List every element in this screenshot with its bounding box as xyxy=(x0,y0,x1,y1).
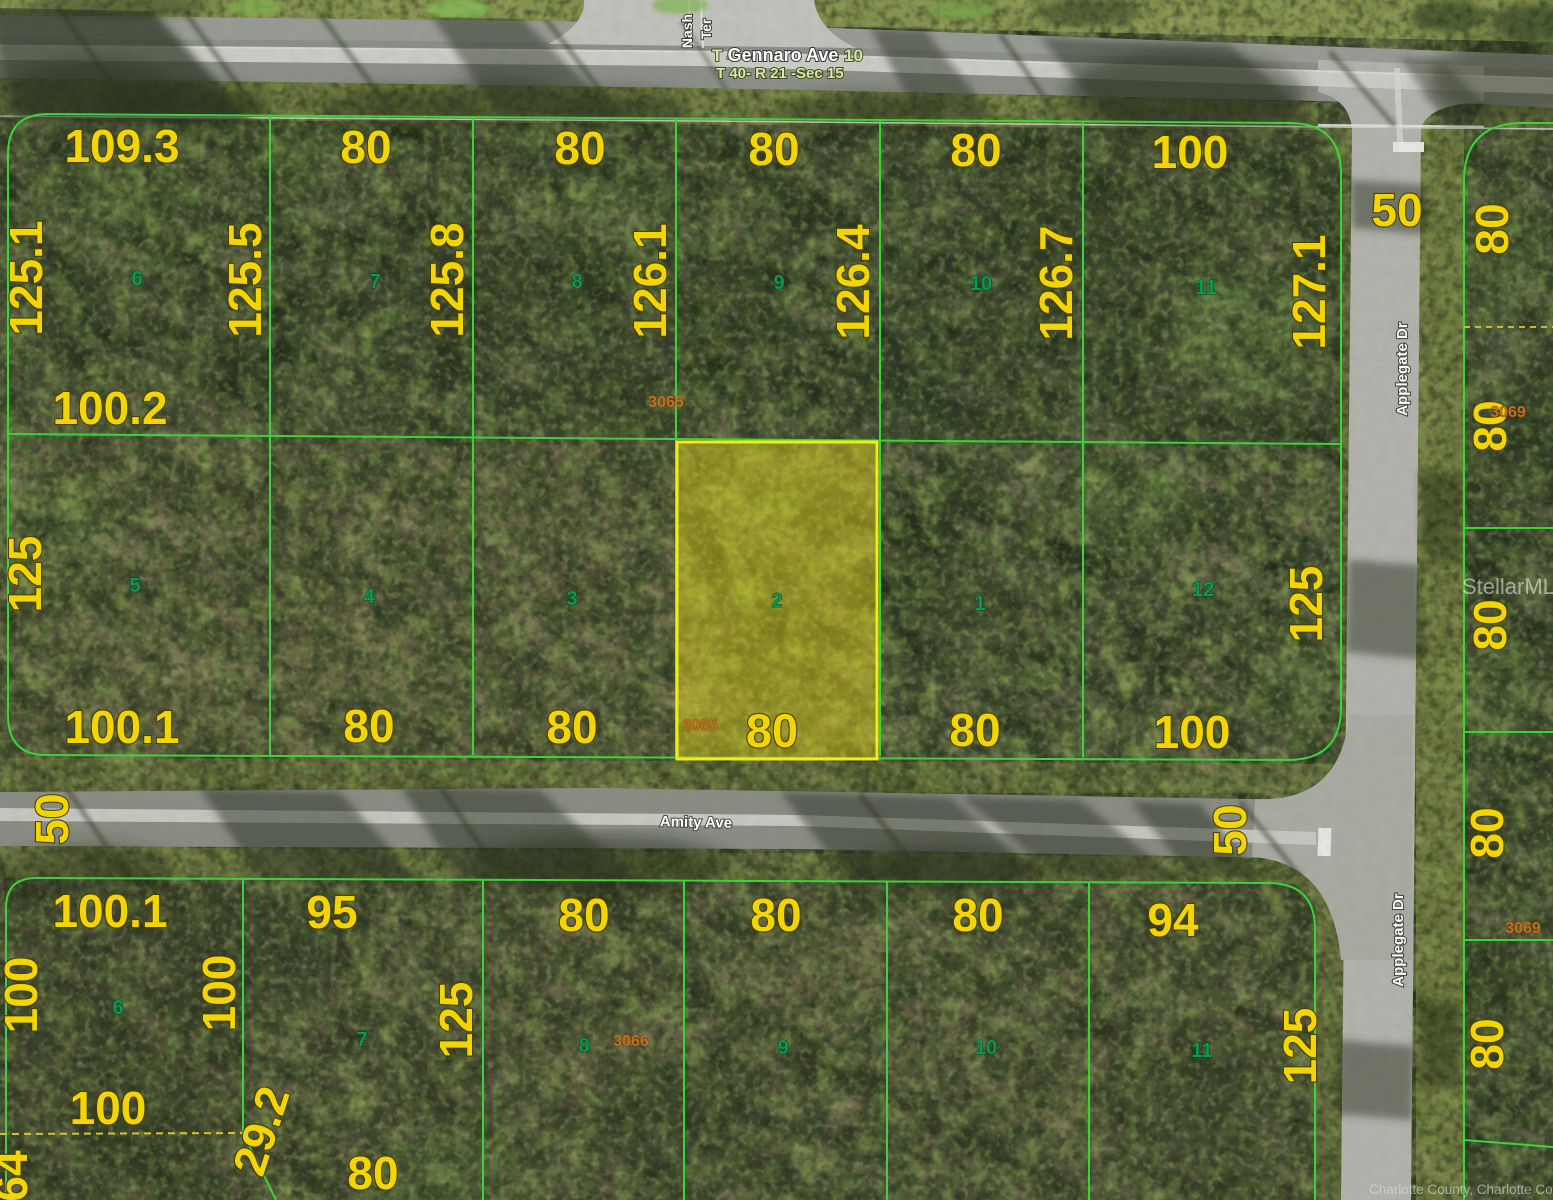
svg-text:50: 50 xyxy=(1371,184,1422,236)
svg-text:4: 4 xyxy=(363,586,375,608)
svg-text:10: 10 xyxy=(975,1037,997,1059)
svg-text:Gennaro Ave: Gennaro Ave xyxy=(728,45,839,65)
svg-text:9: 9 xyxy=(773,272,784,294)
svg-text:3066: 3066 xyxy=(613,1033,649,1050)
svg-text:100: 100 xyxy=(70,1082,147,1134)
svg-text:64: 64 xyxy=(0,1150,37,1200)
svg-text:8: 8 xyxy=(578,1035,589,1057)
svg-text:80: 80 xyxy=(1464,599,1516,650)
svg-text:126.1: 126.1 xyxy=(624,223,676,338)
svg-text:8: 8 xyxy=(571,271,582,293)
svg-text:80: 80 xyxy=(746,704,798,757)
svg-text:100.2: 100.2 xyxy=(52,382,167,434)
svg-text:80: 80 xyxy=(343,700,394,752)
svg-text:125: 125 xyxy=(430,982,482,1059)
svg-text:125: 125 xyxy=(1280,566,1332,643)
svg-text:80: 80 xyxy=(750,889,801,941)
svg-text:10: 10 xyxy=(844,46,863,65)
svg-text:50: 50 xyxy=(26,793,78,844)
svg-text:Ter: Ter xyxy=(698,18,714,39)
svg-text:50: 50 xyxy=(1204,804,1256,855)
svg-text:100: 100 xyxy=(1152,126,1229,178)
svg-text:Nash: Nash xyxy=(679,14,695,48)
svg-text:3065: 3065 xyxy=(648,394,684,411)
svg-text:6: 6 xyxy=(131,268,142,290)
svg-text:3: 3 xyxy=(566,588,577,610)
svg-text:94: 94 xyxy=(1147,894,1199,946)
svg-text:80: 80 xyxy=(554,122,605,174)
svg-text:7: 7 xyxy=(369,271,380,293)
svg-text:125.1: 125.1 xyxy=(0,220,52,335)
svg-text:125: 125 xyxy=(1274,1008,1326,1085)
svg-text:9: 9 xyxy=(777,1037,788,1059)
svg-text:80: 80 xyxy=(952,889,1003,941)
svg-text:7: 7 xyxy=(356,1029,367,1051)
svg-text:80: 80 xyxy=(748,123,799,175)
svg-text:80: 80 xyxy=(546,701,597,753)
svg-text:125.5: 125.5 xyxy=(219,222,271,337)
svg-text:Applegate Dr: Applegate Dr xyxy=(1390,893,1407,987)
svg-text:3065: 3065 xyxy=(682,717,718,734)
svg-text:12: 12 xyxy=(1192,579,1214,601)
svg-text:100.1: 100.1 xyxy=(52,885,167,937)
svg-text:1: 1 xyxy=(974,593,985,615)
svg-text:T 40- R 21 -Sec 15: T 40- R 21 -Sec 15 xyxy=(716,65,844,82)
svg-text:11: 11 xyxy=(1191,1040,1212,1062)
svg-text:125: 125 xyxy=(0,536,51,613)
svg-text:10: 10 xyxy=(970,273,992,295)
svg-text:80: 80 xyxy=(1466,203,1518,254)
svg-text:6: 6 xyxy=(112,997,123,1019)
svg-text:80: 80 xyxy=(1461,1018,1513,1069)
svg-text:100: 100 xyxy=(0,957,47,1034)
svg-text:80: 80 xyxy=(949,704,1000,756)
svg-text:126.7: 126.7 xyxy=(1030,225,1082,340)
svg-text:11: 11 xyxy=(1195,277,1216,299)
svg-text:80: 80 xyxy=(347,1147,398,1199)
svg-text:127.1: 127.1 xyxy=(1283,234,1335,349)
svg-text:100: 100 xyxy=(1154,706,1231,758)
svg-text:125.8: 125.8 xyxy=(421,222,473,337)
svg-text:3069: 3069 xyxy=(1505,920,1541,937)
svg-text:80: 80 xyxy=(558,889,609,941)
svg-text:80: 80 xyxy=(950,124,1001,176)
svg-text:109.3: 109.3 xyxy=(64,120,179,172)
svg-text:80: 80 xyxy=(340,121,391,173)
svg-text:StellarMLS: StellarMLS xyxy=(1462,574,1553,599)
svg-text:Amity Ave: Amity Ave xyxy=(660,813,733,832)
svg-text:80: 80 xyxy=(1461,807,1513,858)
svg-text:126.4: 126.4 xyxy=(827,224,879,340)
svg-text:2: 2 xyxy=(771,590,782,612)
svg-text:95: 95 xyxy=(306,886,357,938)
svg-text:Charlotte County, Charlotte Co: Charlotte County, Charlotte County GIS xyxy=(1369,1182,1553,1197)
svg-text:3069: 3069 xyxy=(1490,404,1526,421)
svg-text:100.1: 100.1 xyxy=(64,701,179,753)
svg-text:5: 5 xyxy=(129,575,140,597)
svg-text:100: 100 xyxy=(193,955,245,1032)
svg-text:Applegate Dr: Applegate Dr xyxy=(1394,322,1411,416)
